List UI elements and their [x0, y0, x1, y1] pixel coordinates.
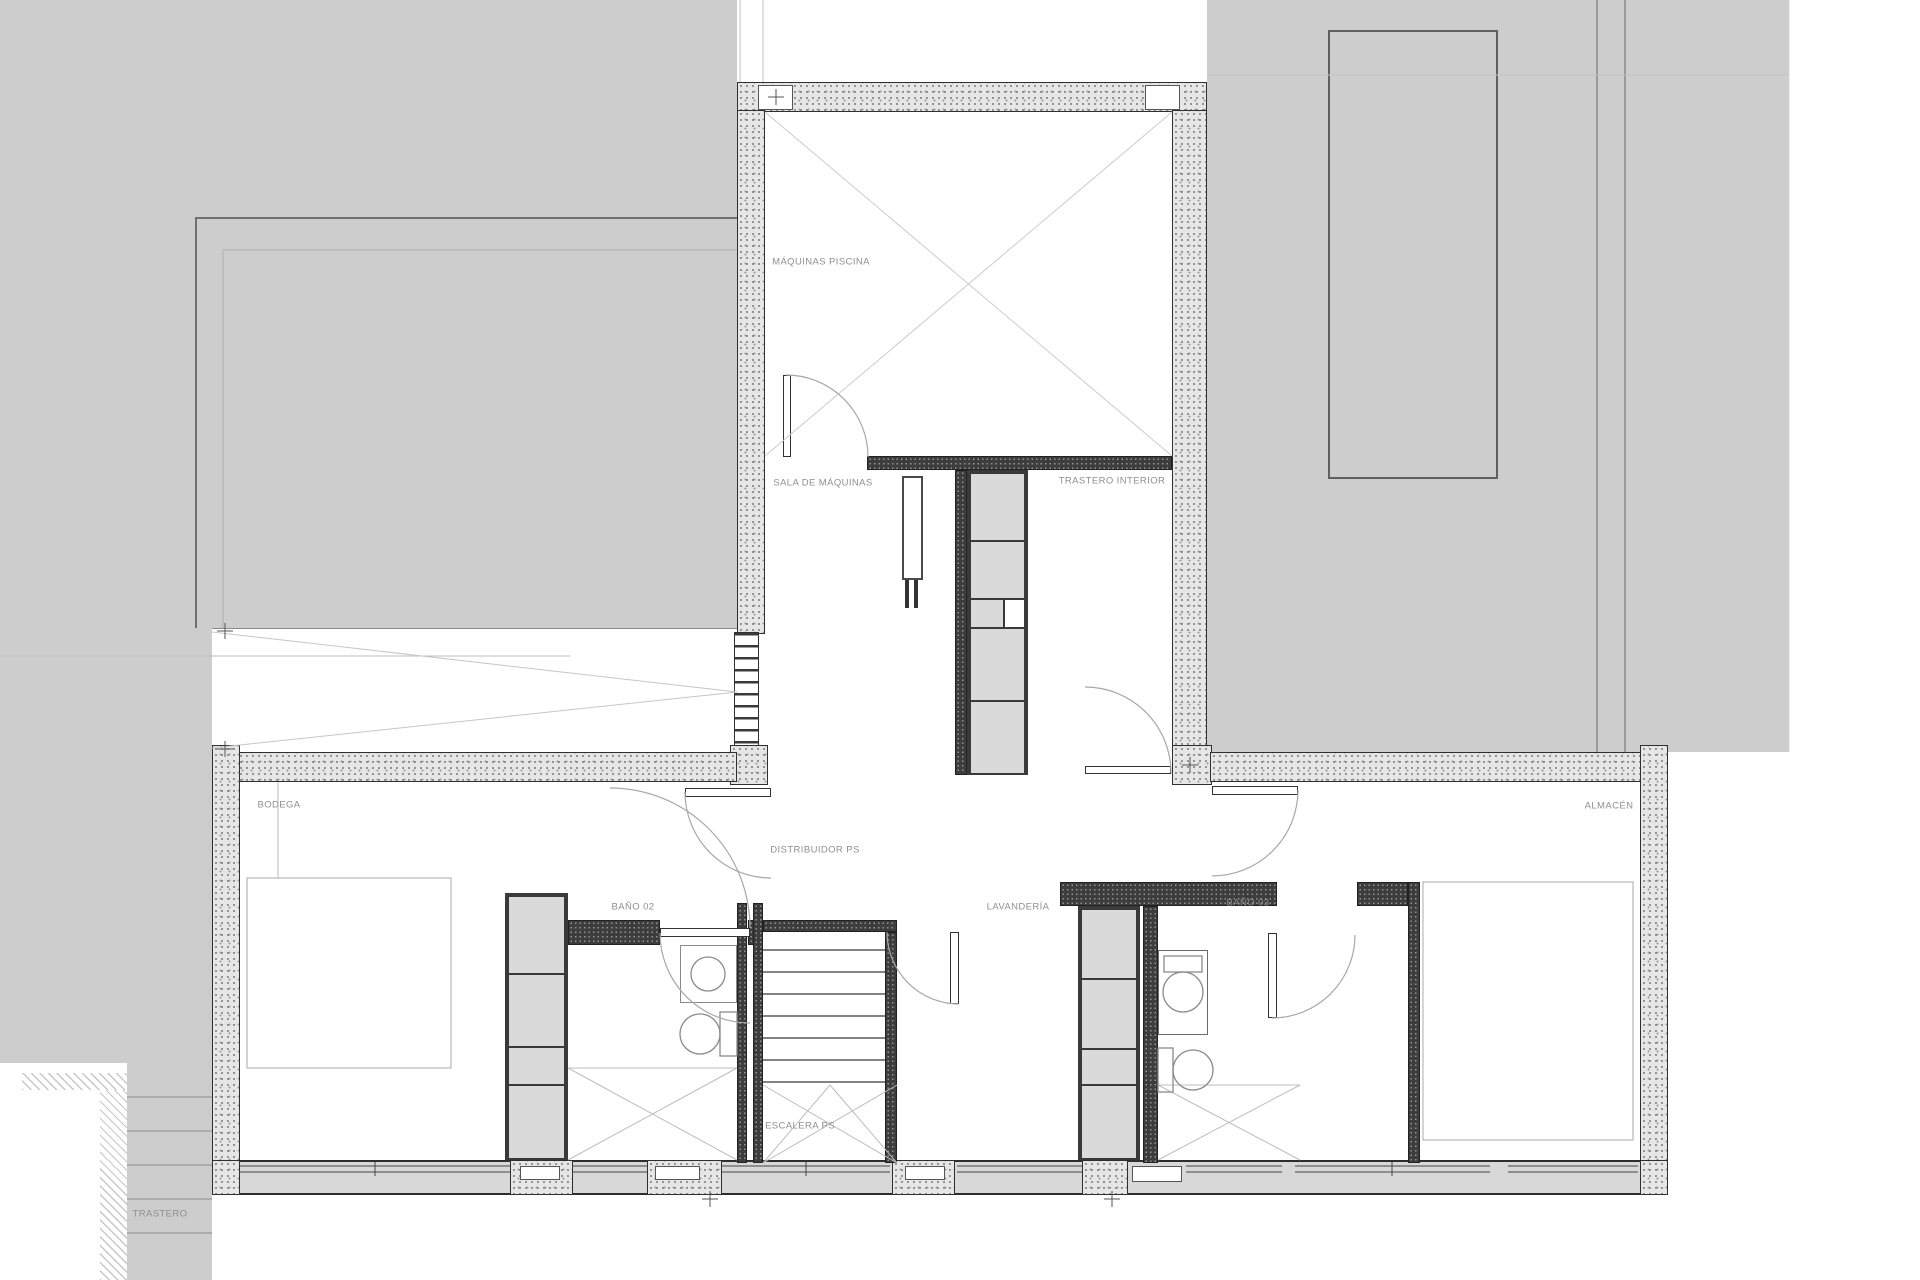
wing-left-wall	[737, 110, 765, 634]
room-label-almacen: ALMACÉN	[1585, 801, 1634, 812]
room-label-escalera: ESCALERA PS	[765, 1121, 835, 1132]
bano02-sink-counter	[680, 945, 737, 1003]
door-leaf-patio	[685, 788, 771, 797]
terrace-left	[0, 0, 737, 629]
door-leaf-bano02	[660, 928, 750, 937]
stair-top-wall	[763, 920, 897, 932]
wing-wall-tick-box-right	[1145, 85, 1180, 110]
cabinet-bano02	[505, 893, 568, 1160]
wing-vent-grille	[734, 632, 759, 748]
stair-west-wall-b	[753, 903, 763, 1163]
door-leaf-sala-maquinas	[783, 375, 791, 457]
window-recess-1	[520, 1166, 560, 1180]
cabinet-lavanderia	[1078, 906, 1140, 1160]
room-label-bodega: BODEGA	[257, 800, 300, 811]
door-leaf-bano03	[1268, 933, 1277, 1018]
stair-east-wall	[885, 932, 897, 1163]
main-left-wall	[212, 745, 240, 1195]
main-top-wall-left	[225, 752, 737, 782]
room-label-bano-02: BAÑO 02	[612, 902, 655, 913]
room-label-maquinas-piscina: MÁQUINAS PISCINA	[772, 257, 870, 268]
window-recess-4	[1132, 1166, 1182, 1182]
room-label-bano-03: BAÑO 03	[1227, 898, 1270, 909]
room-label-sala-de-maquinas: SALA DE MÁQUINAS	[773, 478, 872, 489]
wing-partition-horizontal	[867, 456, 1172, 470]
stair-treads	[763, 950, 885, 1082]
main-top-wall-right	[1210, 752, 1668, 782]
bano02-top-wall	[568, 920, 660, 945]
window-recess-3	[905, 1166, 945, 1180]
terrace-left-margin	[0, 628, 212, 1063]
facade-pier-corner-right	[1640, 1160, 1668, 1195]
stair-west-wall-a	[737, 903, 747, 1163]
room-label-lavanderia: LAVANDERÍA	[987, 902, 1050, 913]
wing-wall-tick-box-left	[758, 85, 793, 110]
boiler-leg-left	[905, 580, 909, 608]
door-leaf-hall-right	[1212, 786, 1298, 795]
main-right-wall	[1640, 745, 1668, 1195]
room-label-trastero: TRASTERO	[133, 1209, 188, 1220]
lavanderia-bano03-divider	[1143, 906, 1158, 1163]
room-label-trastero-interior: TRASTERO INTERIOR	[1059, 476, 1166, 487]
boiler-leg-right	[914, 580, 918, 608]
room-label-distribuidor: DISTRIBUIDOR PS	[770, 845, 859, 856]
bano03-almacen-divider	[1408, 882, 1420, 1163]
door-leaf-trastero-interior	[1085, 766, 1171, 774]
facade-pier-4	[1082, 1160, 1128, 1195]
wing-partition-vertical	[955, 470, 967, 775]
door-leaf-lavanderia	[950, 932, 959, 1004]
wing-top-wall	[737, 82, 1207, 112]
steps-hatch-vertical	[100, 1090, 127, 1280]
boiler	[902, 476, 923, 580]
bano03-washer-unit	[1158, 950, 1208, 1035]
floor-plan-canvas: MÁQUINAS PISCINA SALA DE MÁQUINAS TRASTE…	[0, 0, 1920, 1280]
steps-hatch-horizontal	[22, 1073, 127, 1090]
trastero-shelving	[967, 470, 1028, 775]
terrace-right	[1207, 0, 1789, 752]
window-recess-2	[655, 1166, 700, 1180]
exterior-steps-strip	[127, 1063, 212, 1280]
wing-right-wall	[1172, 110, 1207, 755]
bano03-top-wall-stub	[1357, 882, 1408, 906]
wing-right-junction-column	[1172, 745, 1212, 785]
facade-pier-corner-left	[212, 1160, 240, 1195]
